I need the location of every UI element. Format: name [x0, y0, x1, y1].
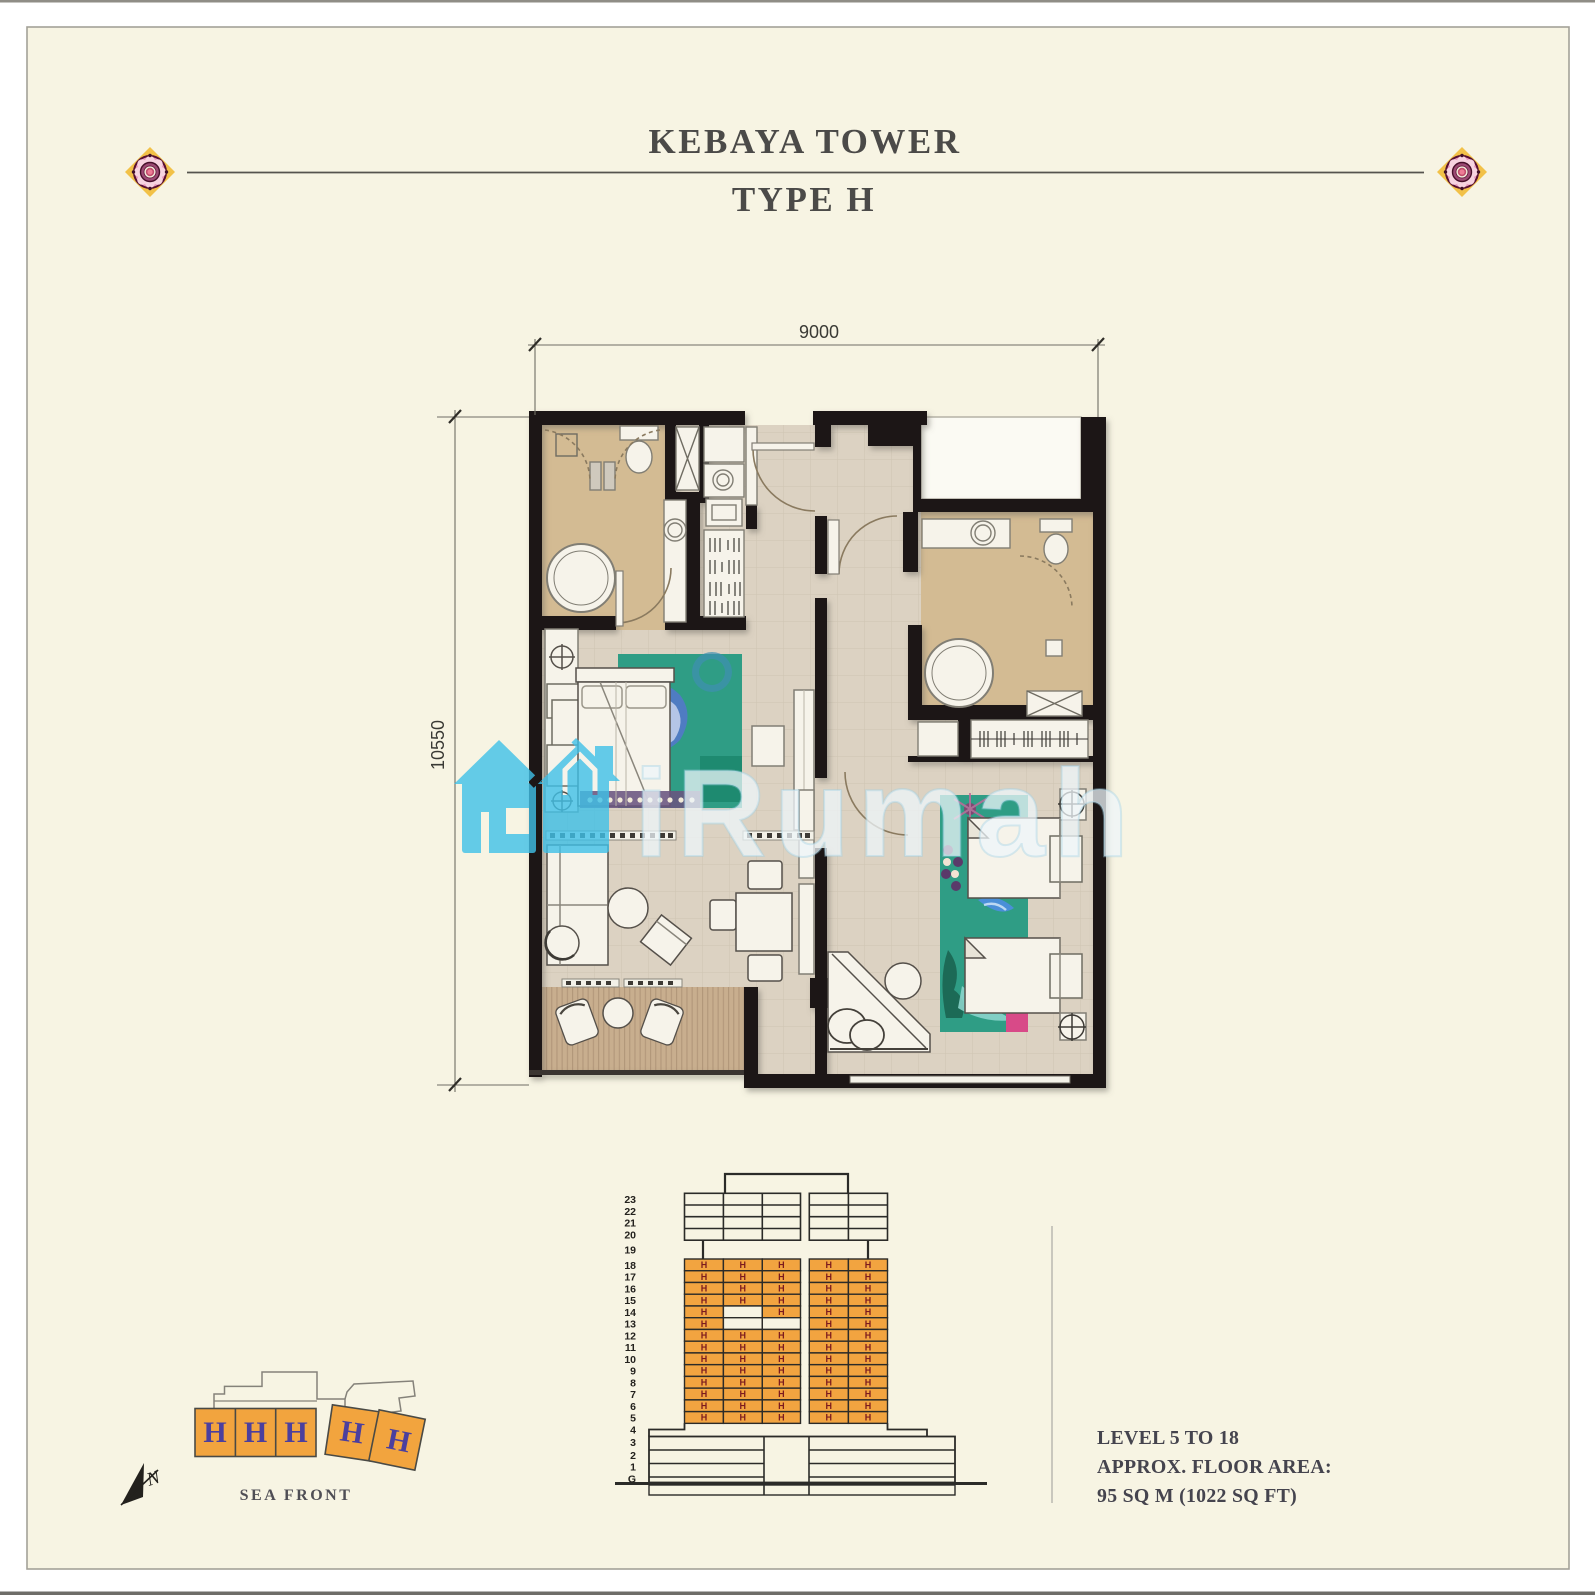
svg-text:19: 19 — [624, 1245, 636, 1257]
svg-text:APPROX. FLOOR AREA:: APPROX. FLOOR AREA: — [1097, 1456, 1332, 1478]
svg-text:H: H — [701, 1377, 708, 1387]
svg-text:1: 1 — [630, 1462, 636, 1474]
svg-text:10550: 10550 — [428, 720, 448, 770]
svg-text:H: H — [865, 1284, 872, 1294]
svg-text:14: 14 — [624, 1307, 636, 1319]
svg-text:H: H — [778, 1260, 785, 1270]
svg-text:H: H — [740, 1354, 747, 1364]
svg-text:12: 12 — [624, 1330, 636, 1342]
svg-text:H: H — [284, 1416, 307, 1449]
svg-text:9: 9 — [630, 1366, 636, 1378]
svg-text:H: H — [740, 1377, 747, 1387]
svg-text:H: H — [826, 1331, 833, 1341]
svg-text:H: H — [865, 1413, 872, 1423]
svg-text:H: H — [244, 1416, 267, 1449]
svg-text:G: G — [628, 1474, 636, 1486]
svg-text:H: H — [865, 1342, 872, 1352]
svg-text:H: H — [865, 1366, 872, 1376]
svg-text:H: H — [701, 1319, 708, 1329]
svg-text:4: 4 — [630, 1425, 636, 1437]
svg-text:H: H — [740, 1260, 747, 1270]
svg-text:H: H — [865, 1260, 872, 1270]
svg-text:H: H — [778, 1307, 785, 1317]
svg-text:H: H — [826, 1284, 833, 1294]
svg-text:H: H — [778, 1401, 785, 1411]
svg-text:H: H — [865, 1272, 872, 1282]
svg-text:H: H — [778, 1413, 785, 1423]
svg-text:H: H — [826, 1272, 833, 1282]
svg-text:H: H — [701, 1366, 708, 1376]
svg-text:H: H — [865, 1331, 872, 1341]
svg-text:H: H — [740, 1295, 747, 1305]
svg-text:H: H — [740, 1389, 747, 1399]
svg-text:6: 6 — [630, 1401, 636, 1413]
svg-text:H: H — [826, 1401, 833, 1411]
svg-text:17: 17 — [624, 1272, 636, 1284]
svg-text:13: 13 — [624, 1319, 636, 1331]
svg-text:H: H — [865, 1401, 872, 1411]
svg-text:8: 8 — [630, 1377, 636, 1389]
svg-text:15: 15 — [624, 1295, 636, 1307]
svg-text:H: H — [740, 1401, 747, 1411]
svg-text:10: 10 — [624, 1354, 636, 1366]
svg-text:H: H — [826, 1307, 833, 1317]
svg-text:H: H — [778, 1377, 785, 1387]
svg-text:LEVEL 5 TO 18: LEVEL 5 TO 18 — [1097, 1427, 1239, 1449]
svg-text:H: H — [701, 1413, 708, 1423]
svg-text:23: 23 — [624, 1194, 636, 1206]
svg-text:H: H — [826, 1342, 833, 1352]
svg-text:18: 18 — [624, 1260, 636, 1272]
svg-text:20: 20 — [624, 1229, 636, 1241]
svg-text:H: H — [740, 1366, 747, 1376]
svg-text:H: H — [740, 1272, 747, 1282]
svg-text:H: H — [701, 1284, 708, 1294]
svg-text:H: H — [203, 1416, 226, 1449]
svg-text:H: H — [826, 1389, 833, 1399]
svg-text:5: 5 — [630, 1413, 636, 1425]
svg-text:22: 22 — [624, 1206, 636, 1218]
svg-text:H: H — [865, 1319, 872, 1329]
svg-text:H: H — [778, 1342, 785, 1352]
svg-text:7: 7 — [630, 1389, 636, 1401]
svg-text:iRumah: iRumah — [634, 745, 1137, 883]
svg-text:H: H — [778, 1272, 785, 1282]
svg-text:H: H — [826, 1366, 833, 1376]
svg-text:H: H — [865, 1307, 872, 1317]
svg-text:H: H — [865, 1389, 872, 1399]
svg-text:TYPE H: TYPE H — [732, 180, 876, 219]
svg-text:H: H — [701, 1260, 708, 1270]
svg-text:H: H — [826, 1354, 833, 1364]
svg-text:H: H — [778, 1331, 785, 1341]
svg-text:2: 2 — [630, 1450, 636, 1462]
svg-text:H: H — [865, 1354, 872, 1364]
svg-text:H: H — [740, 1284, 747, 1294]
svg-text:H: H — [826, 1260, 833, 1270]
svg-text:16: 16 — [624, 1283, 636, 1295]
svg-text:21: 21 — [624, 1218, 636, 1230]
svg-text:H: H — [740, 1331, 747, 1341]
svg-text:H: H — [778, 1366, 785, 1376]
svg-text:3: 3 — [630, 1437, 636, 1449]
svg-text:H: H — [701, 1401, 708, 1411]
svg-text:H: H — [701, 1272, 708, 1282]
svg-text:95 SQ M (1022 SQ FT): 95 SQ M (1022 SQ FT) — [1097, 1485, 1297, 1507]
svg-text:H: H — [338, 1414, 366, 1450]
svg-text:H: H — [701, 1342, 708, 1352]
svg-text:H: H — [826, 1295, 833, 1305]
svg-text:11: 11 — [625, 1342, 636, 1354]
svg-text:H: H — [740, 1342, 747, 1352]
svg-text:H: H — [865, 1377, 872, 1387]
svg-text:H: H — [778, 1295, 785, 1305]
svg-text:H: H — [778, 1389, 785, 1399]
svg-text:SEA FRONT: SEA FRONT — [240, 1487, 353, 1504]
svg-text:H: H — [701, 1331, 708, 1341]
svg-text:H: H — [740, 1413, 747, 1423]
svg-text:H: H — [701, 1389, 708, 1399]
svg-text:H: H — [778, 1284, 785, 1294]
svg-text:H: H — [826, 1377, 833, 1387]
svg-text:H: H — [865, 1295, 872, 1305]
svg-text:H: H — [701, 1295, 708, 1305]
svg-text:H: H — [701, 1354, 708, 1364]
svg-text:H: H — [778, 1354, 785, 1364]
svg-text:KEBAYA TOWER: KEBAYA TOWER — [648, 122, 961, 161]
svg-text:H: H — [826, 1319, 833, 1329]
svg-text:H: H — [826, 1413, 833, 1423]
svg-text:9000: 9000 — [799, 322, 839, 342]
svg-text:H: H — [701, 1307, 708, 1317]
